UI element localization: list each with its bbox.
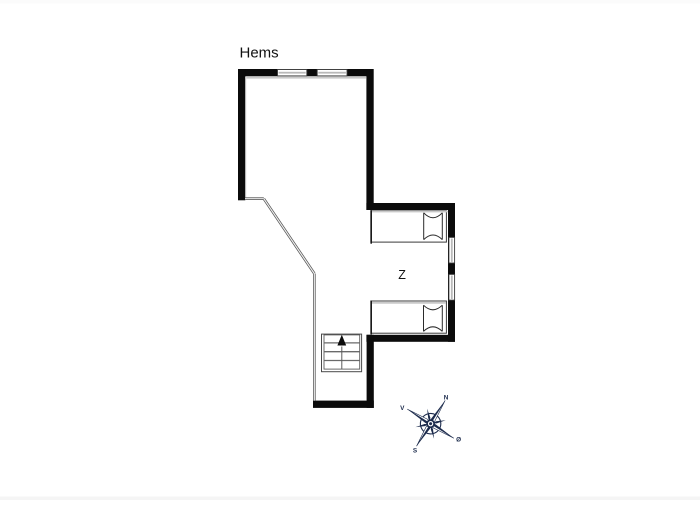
- svg-text:V: V: [400, 405, 405, 412]
- svg-text:N: N: [444, 394, 449, 401]
- svg-text:Z: Z: [398, 268, 406, 282]
- svg-text:S: S: [413, 448, 418, 455]
- svg-text:Ø: Ø: [456, 437, 461, 444]
- svg-text:Hems: Hems: [240, 45, 279, 62]
